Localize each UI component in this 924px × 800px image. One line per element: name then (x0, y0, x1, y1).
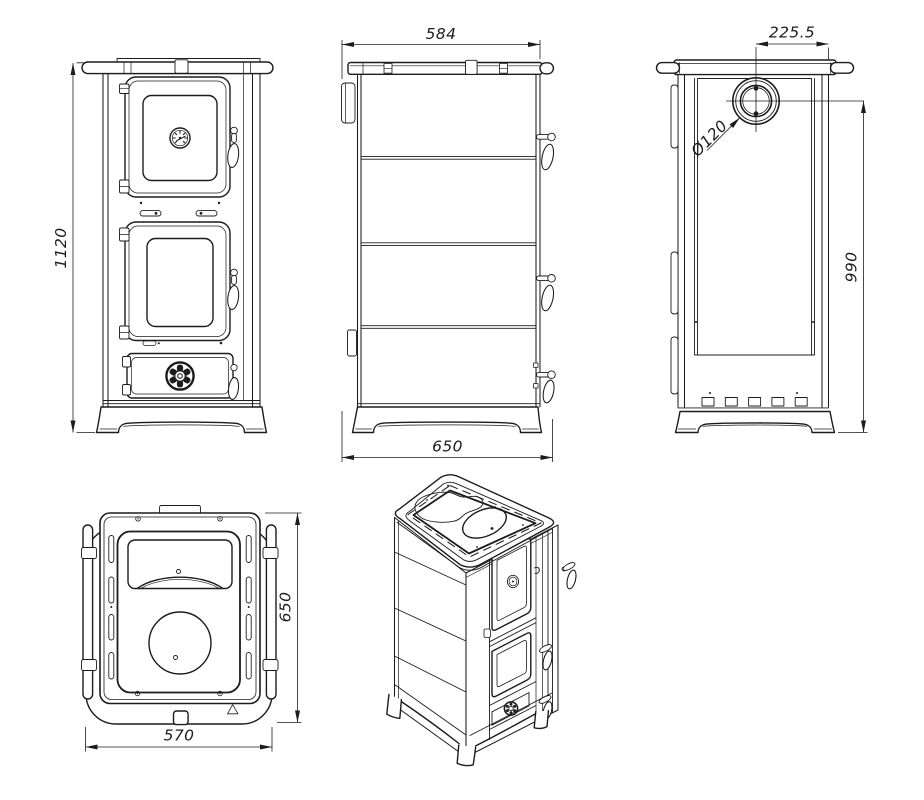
rear-bracket-lower (348, 330, 357, 356)
hinge (123, 357, 131, 368)
top-plate-tab (175, 60, 188, 73)
front-vent-slots (140, 202, 220, 216)
rear-view: 225.5 Ø120 990 (657, 24, 868, 433)
side-plinth (353, 407, 542, 433)
rail-end-right (831, 63, 854, 74)
fire-door (120, 77, 240, 197)
rail-end (540, 63, 553, 74)
air-rosette (166, 362, 193, 389)
front-plinth (97, 407, 267, 433)
top-plate (348, 63, 542, 75)
rear-vents (702, 392, 807, 406)
dim-rear-flue-offset-label: 225.5 (769, 24, 815, 42)
dim-side-bottom-depth-label: 650 (432, 438, 463, 456)
dim-rear-flue-height-label: 990 (843, 252, 861, 283)
dim-flue-diameter: Ø120 (687, 117, 740, 161)
persp-leg-front (457, 745, 475, 766)
front-tab (174, 711, 189, 725)
dim-side-top-width-label: 584 (426, 25, 457, 43)
side-rail-bar (671, 85, 678, 148)
warming-plate (128, 540, 232, 589)
dim-top-width-label: 570 (164, 727, 195, 745)
side-handle-oven (537, 275, 556, 312)
thermometer-gauge (170, 128, 190, 148)
perspective-view (387, 475, 578, 766)
oven-door-glass (147, 239, 213, 327)
hinge (484, 629, 491, 638)
side-handle-fire (537, 133, 556, 171)
hinge (123, 385, 131, 396)
dim-flue-diameter-label: Ø120 (687, 117, 731, 161)
side-handle-ash (534, 363, 556, 404)
stove-drawing: 1120 (0, 0, 924, 800)
side-rail-bar (671, 337, 678, 394)
dim-front-height: 1120 (52, 63, 95, 433)
side-view: 584 (342, 25, 556, 462)
technical-drawing-canvas: 1120 (0, 0, 924, 800)
side-rail-bar (671, 252, 678, 314)
front-stove-body (82, 59, 273, 433)
oven-door (120, 222, 240, 341)
front-view: 1120 (52, 59, 273, 433)
rear-shield-bracket (342, 83, 356, 123)
top-plate (674, 60, 836, 75)
rear-stove-body (657, 60, 854, 433)
ash-drawer (123, 341, 240, 400)
side-stove-body (342, 60, 556, 432)
dim-front-height-label: 1120 (52, 227, 70, 268)
top-view: 650 570 (82, 506, 302, 752)
rear-plinth (676, 412, 835, 433)
top-plate-tab (466, 60, 478, 74)
rail-end-left (657, 63, 680, 74)
persp-leg-right (534, 711, 548, 729)
dim-rear-flue-height: 990 (838, 101, 868, 433)
dim-top-width: 570 (86, 727, 273, 752)
dim-top-depth-label: 650 (277, 592, 295, 623)
